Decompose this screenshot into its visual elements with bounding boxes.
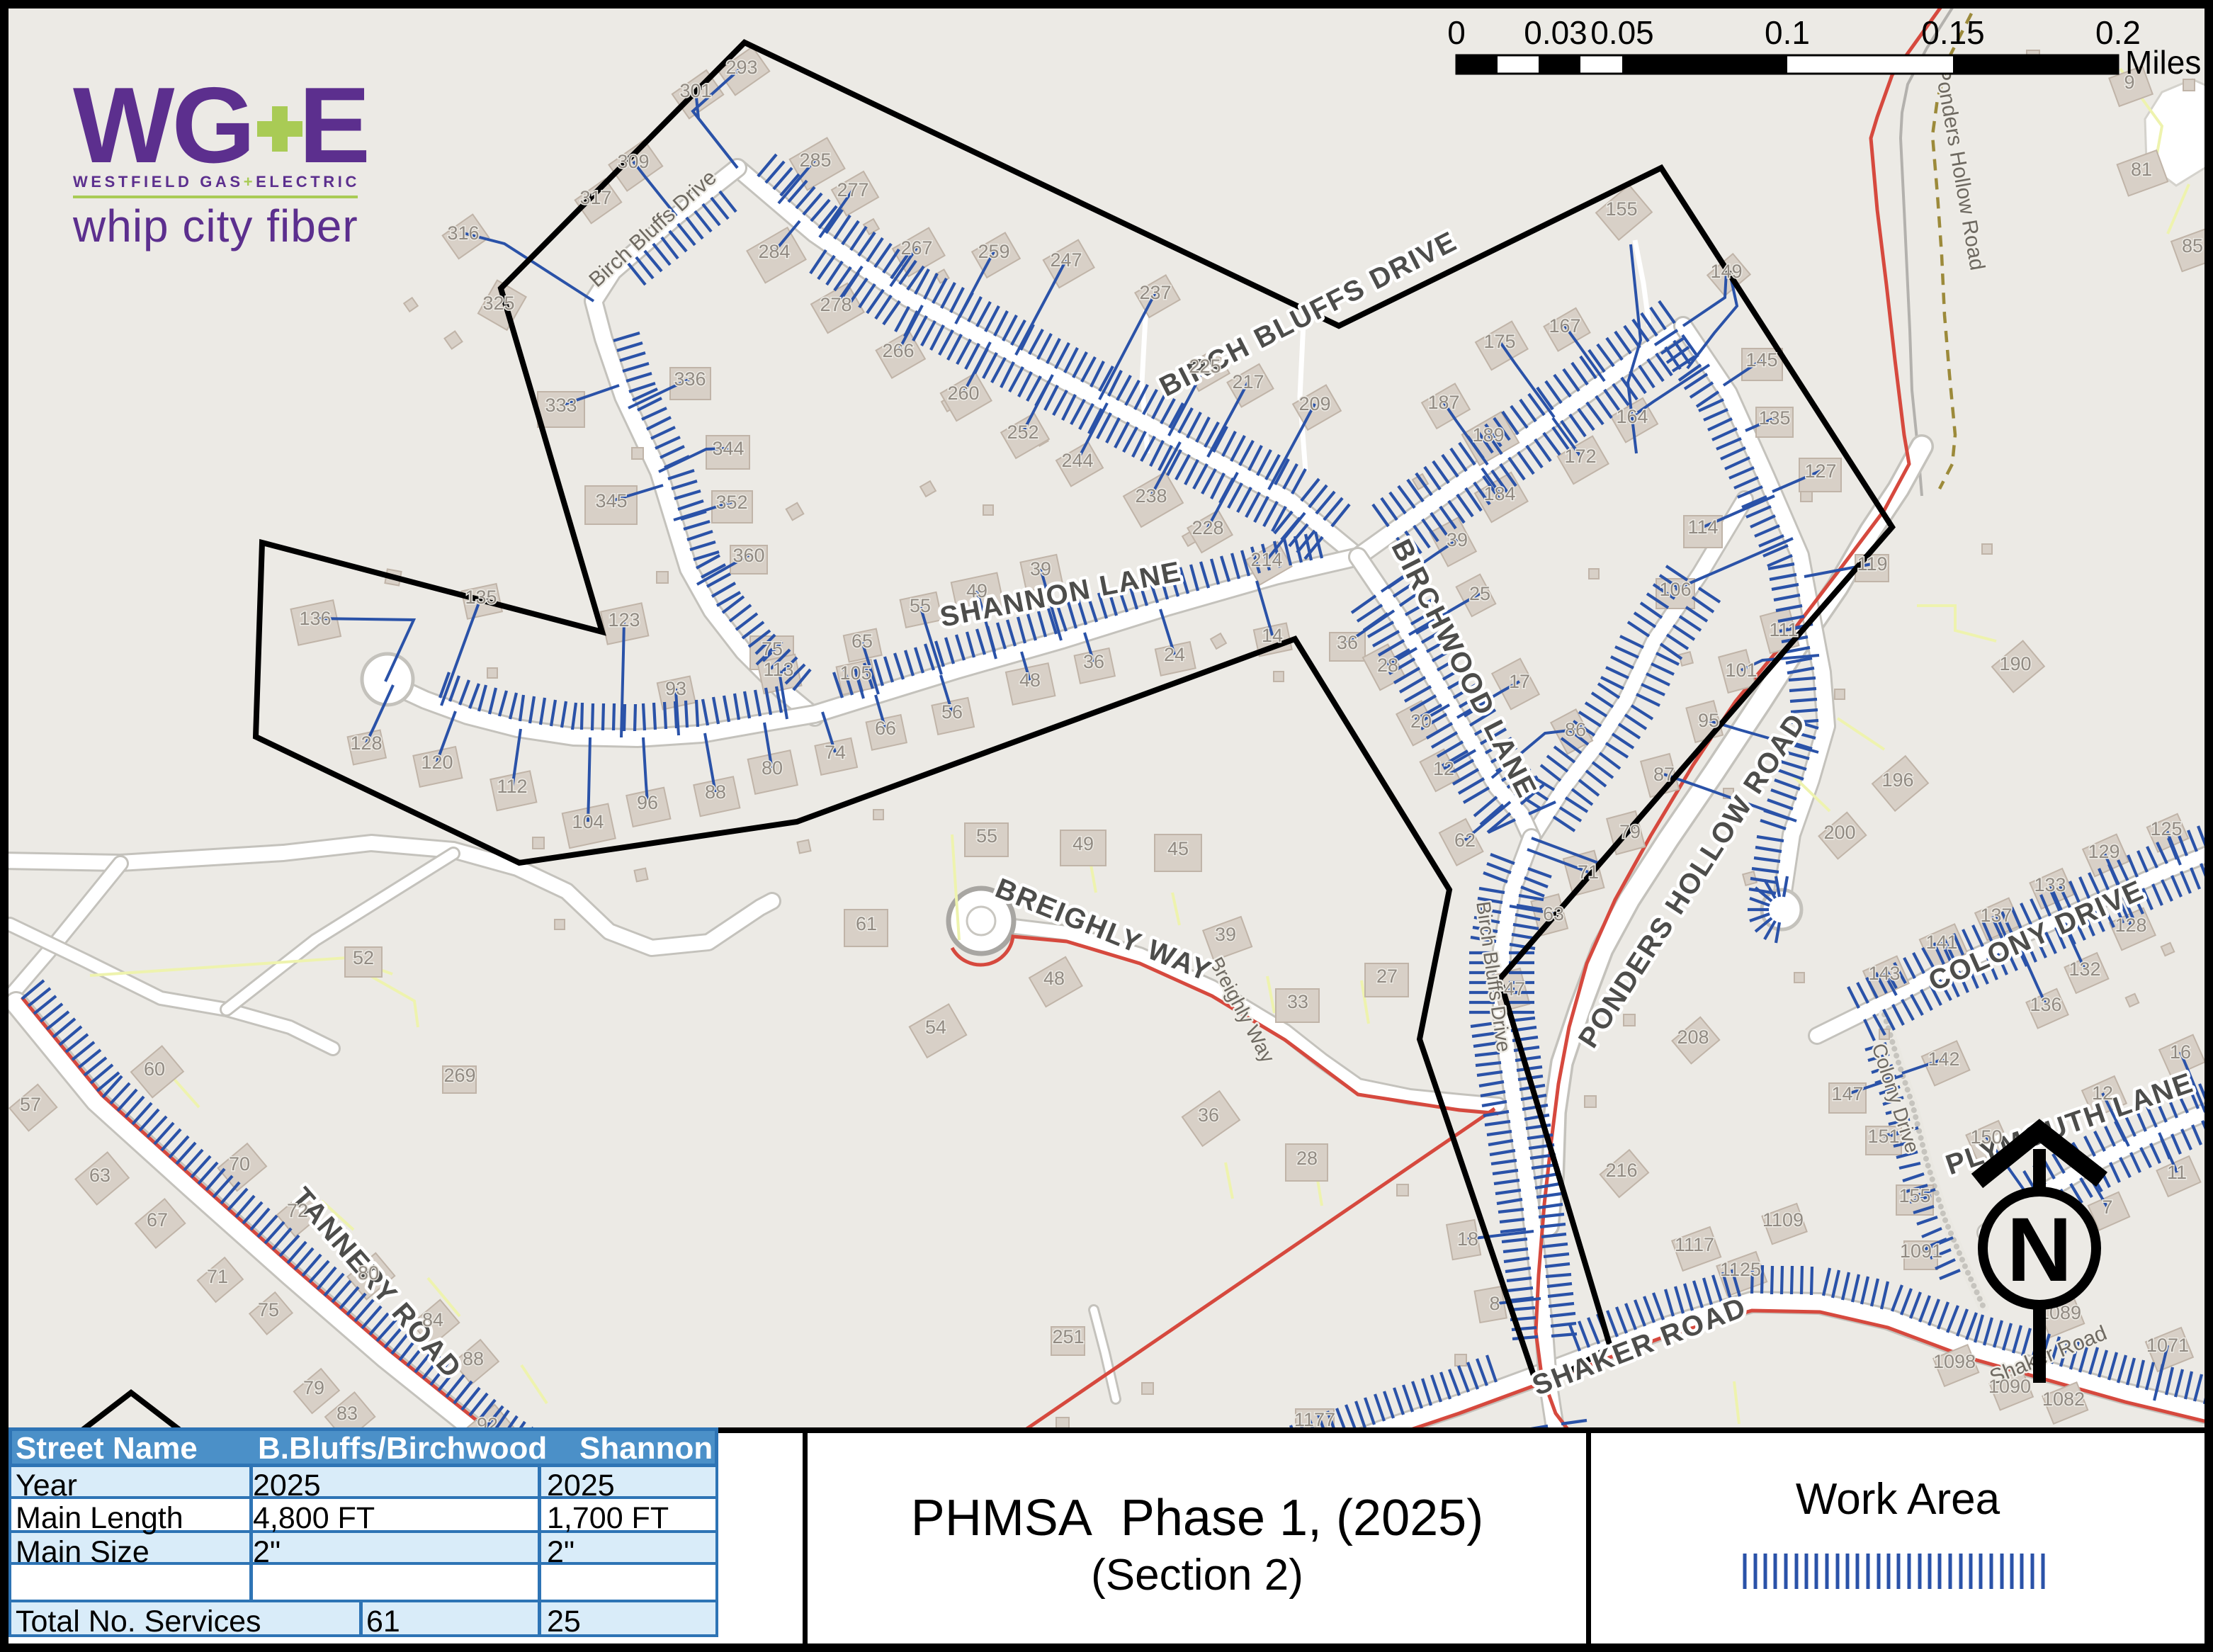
svg-text:106: 106 (1659, 579, 1691, 600)
svg-text:93: 93 (665, 678, 686, 699)
svg-text:285: 285 (799, 149, 831, 171)
svg-text:147: 147 (1831, 1083, 1863, 1104)
svg-text:63: 63 (89, 1165, 111, 1186)
svg-text:225: 225 (1189, 356, 1221, 377)
svg-text:184: 184 (1483, 483, 1515, 504)
svg-text:0.15: 0.15 (1921, 14, 1985, 51)
svg-text:114: 114 (1687, 516, 1718, 538)
svg-text:36: 36 (1198, 1104, 1219, 1126)
svg-text:39: 39 (1215, 924, 1236, 945)
svg-text:36: 36 (1337, 632, 1358, 653)
svg-text:1117: 1117 (1675, 1234, 1714, 1255)
svg-text:67: 67 (147, 1209, 168, 1230)
svg-text:49: 49 (1072, 833, 1094, 854)
svg-text:208: 208 (1677, 1026, 1709, 1048)
svg-text:301: 301 (679, 80, 711, 101)
svg-text:66: 66 (875, 718, 896, 739)
svg-text:57: 57 (20, 1094, 41, 1115)
svg-text:111: 111 (1769, 619, 1798, 640)
svg-text:27: 27 (1376, 966, 1398, 987)
svg-text:96: 96 (637, 792, 658, 813)
svg-text:105: 105 (839, 662, 871, 684)
svg-text:62: 62 (1454, 830, 1476, 851)
svg-text:104: 104 (572, 811, 604, 832)
svg-text:11: 11 (2167, 1162, 2187, 1183)
svg-text:79: 79 (303, 1377, 324, 1398)
svg-text:251: 251 (1052, 1326, 1084, 1347)
svg-text:45: 45 (1167, 838, 1189, 859)
svg-text:137: 137 (1980, 905, 2012, 926)
svg-text:135: 135 (1758, 407, 1790, 429)
svg-text:209: 209 (1298, 393, 1330, 414)
svg-text:129: 129 (2088, 841, 2119, 862)
svg-text:136: 136 (299, 608, 331, 629)
svg-text:48: 48 (1043, 968, 1065, 989)
svg-text:Miles: Miles (2125, 44, 2201, 81)
svg-text:133: 133 (2034, 874, 2066, 895)
svg-text:1082: 1082 (2042, 1388, 2085, 1410)
svg-text:74: 74 (825, 742, 846, 763)
svg-text:17: 17 (1509, 671, 1530, 692)
svg-text:190: 190 (1999, 653, 2031, 674)
svg-text:1091: 1091 (1900, 1240, 1942, 1262)
svg-text:81: 81 (2131, 159, 2152, 180)
svg-text:196: 196 (1881, 769, 1913, 791)
svg-text:266: 266 (882, 340, 914, 361)
svg-text:12: 12 (1433, 758, 1454, 779)
svg-text:55: 55 (910, 595, 931, 616)
svg-text:75: 75 (258, 1299, 279, 1320)
svg-text:72: 72 (287, 1200, 308, 1221)
svg-text:336: 336 (674, 368, 706, 390)
svg-text:N: N (2007, 1199, 2072, 1301)
svg-text:14: 14 (1262, 625, 1283, 646)
svg-text:36: 36 (1083, 651, 1104, 672)
svg-text:136: 136 (2030, 994, 2061, 1015)
svg-text:55: 55 (976, 825, 997, 847)
svg-text:83: 83 (336, 1403, 358, 1424)
svg-text:56: 56 (941, 701, 963, 723)
svg-text:252: 252 (1007, 422, 1038, 443)
svg-text:113: 113 (763, 659, 793, 680)
svg-text:269: 269 (443, 1065, 475, 1086)
svg-text:155: 155 (1898, 1185, 1930, 1206)
svg-text:125: 125 (2150, 818, 2182, 839)
svg-text:95: 95 (1698, 710, 1719, 731)
svg-text:8: 8 (1489, 1293, 1500, 1314)
svg-text:112: 112 (497, 776, 527, 797)
svg-text:164: 164 (1616, 406, 1648, 427)
svg-text:360: 360 (732, 545, 764, 566)
svg-text:228: 228 (1192, 517, 1223, 538)
svg-text:49: 49 (966, 580, 987, 601)
svg-text:149: 149 (1710, 261, 1742, 282)
svg-text:142: 142 (1928, 1048, 1959, 1070)
svg-text:84: 84 (422, 1309, 443, 1330)
svg-text:216: 216 (1605, 1160, 1637, 1181)
svg-text:1098: 1098 (1933, 1351, 1976, 1372)
svg-text:18: 18 (1457, 1228, 1478, 1250)
svg-text:172: 172 (1564, 446, 1596, 467)
svg-text:79: 79 (1619, 821, 1641, 842)
svg-text:247: 247 (1050, 249, 1082, 271)
svg-text:325: 325 (482, 293, 514, 314)
svg-text:1071: 1071 (2146, 1335, 2189, 1356)
svg-text:24: 24 (1164, 644, 1185, 665)
svg-text:7: 7 (2102, 1196, 2112, 1218)
svg-text:128: 128 (2115, 915, 2146, 936)
svg-text:309: 309 (617, 151, 649, 172)
svg-text:52: 52 (353, 947, 374, 968)
svg-text:244: 244 (1061, 450, 1093, 471)
svg-text:259: 259 (978, 241, 1009, 262)
svg-text:150: 150 (1970, 1126, 2002, 1148)
svg-text:12: 12 (2092, 1082, 2113, 1104)
svg-text:175: 175 (1483, 331, 1515, 352)
svg-text:187: 187 (1427, 392, 1459, 413)
svg-text:86: 86 (1565, 719, 1586, 740)
svg-text:75: 75 (762, 638, 783, 660)
svg-text:1125: 1125 (1720, 1259, 1761, 1280)
svg-text:145: 145 (1745, 349, 1777, 370)
svg-text:88: 88 (705, 781, 726, 803)
svg-text:80: 80 (358, 1262, 379, 1284)
svg-text:0.05: 0.05 (1590, 14, 1654, 51)
svg-text:47: 47 (1504, 978, 1525, 1000)
svg-text:85: 85 (2182, 235, 2203, 256)
svg-text:267: 267 (900, 237, 932, 259)
svg-text:317: 317 (579, 187, 611, 208)
svg-text:141: 141 (1925, 932, 1957, 953)
svg-text:48: 48 (1019, 669, 1041, 691)
svg-text:155: 155 (1605, 198, 1637, 220)
svg-text:88: 88 (463, 1348, 484, 1369)
svg-text:70: 70 (229, 1153, 250, 1175)
svg-text:33: 33 (1287, 991, 1308, 1012)
svg-text:200: 200 (1823, 822, 1855, 843)
svg-text:1177: 1177 (1294, 1409, 1335, 1430)
svg-text:278: 278 (820, 294, 851, 315)
svg-text:333: 333 (545, 395, 577, 416)
svg-text:119: 119 (1857, 553, 1887, 575)
svg-text:120: 120 (421, 752, 453, 773)
svg-text:63: 63 (1543, 903, 1564, 924)
svg-text:0.1: 0.1 (1765, 14, 1810, 51)
svg-text:189: 189 (1472, 424, 1504, 446)
svg-text:71: 71 (1578, 861, 1599, 883)
svg-text:65: 65 (851, 630, 873, 652)
svg-text:39: 39 (1030, 558, 1051, 579)
svg-text:135: 135 (465, 587, 497, 608)
svg-text:39: 39 (1447, 529, 1468, 550)
svg-text:61: 61 (856, 913, 877, 934)
svg-text:352: 352 (715, 492, 747, 513)
svg-text:71: 71 (207, 1266, 228, 1287)
svg-text:87: 87 (1653, 764, 1675, 785)
svg-text:25: 25 (1469, 583, 1490, 604)
svg-text:127: 127 (1804, 460, 1836, 482)
svg-text:54: 54 (925, 1017, 946, 1038)
svg-text:0: 0 (1447, 14, 1466, 51)
svg-text:167: 167 (1549, 315, 1580, 336)
svg-text:1090: 1090 (1988, 1376, 2031, 1397)
svg-text:132: 132 (2068, 958, 2100, 980)
svg-text:277: 277 (837, 179, 868, 200)
svg-text:260: 260 (947, 383, 979, 404)
svg-text:344: 344 (712, 438, 744, 459)
svg-text:80: 80 (762, 757, 783, 779)
svg-text:0.03: 0.03 (1524, 14, 1587, 51)
svg-text:101: 101 (1725, 660, 1757, 681)
svg-text:143: 143 (1868, 963, 1900, 984)
svg-text:1109: 1109 (1762, 1209, 1804, 1230)
svg-text:28: 28 (1377, 655, 1398, 676)
svg-text:16: 16 (2170, 1041, 2191, 1063)
svg-text:217: 217 (1232, 371, 1264, 392)
svg-text:28: 28 (1296, 1148, 1318, 1169)
svg-text:293: 293 (725, 57, 757, 78)
svg-text:316: 316 (447, 222, 479, 244)
svg-text:128: 128 (350, 732, 382, 754)
svg-text:345: 345 (595, 490, 627, 511)
svg-text:151: 151 (1867, 1126, 1899, 1147)
svg-text:238: 238 (1135, 485, 1167, 507)
svg-text:237: 237 (1139, 282, 1171, 303)
svg-text:60: 60 (144, 1058, 165, 1080)
svg-text:214: 214 (1250, 549, 1282, 570)
svg-text:284: 284 (758, 241, 790, 262)
svg-text:20: 20 (1410, 711, 1432, 732)
svg-text:123: 123 (608, 609, 640, 630)
